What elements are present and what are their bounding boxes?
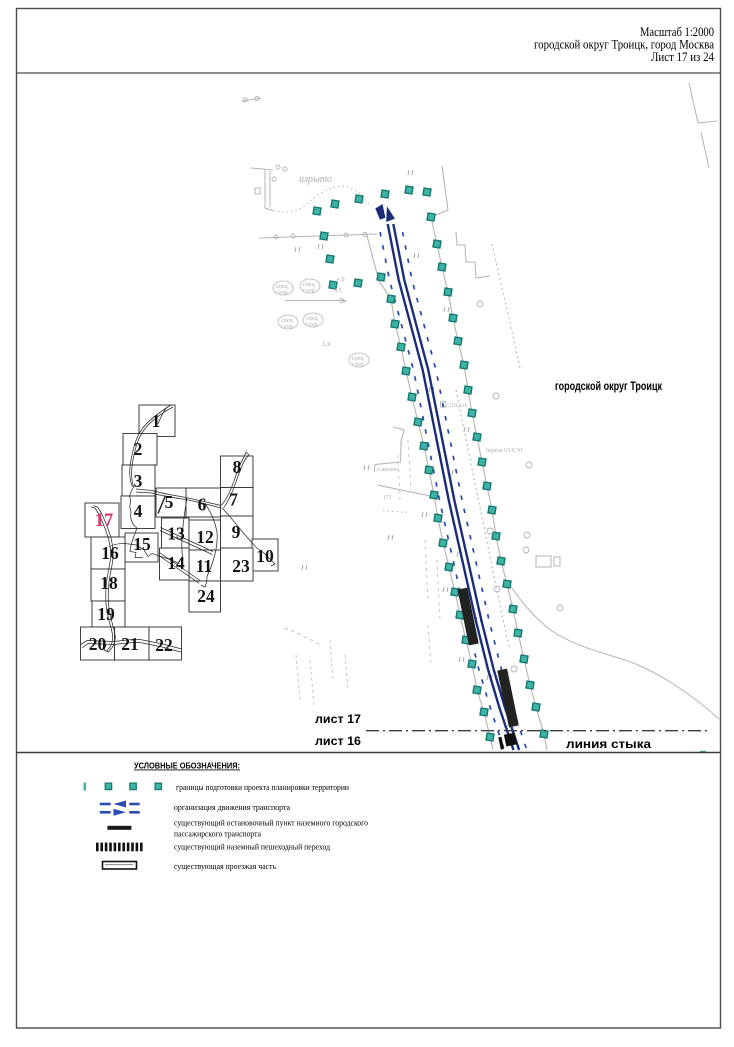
svg-text:6: 6: [198, 495, 207, 515]
svg-text:19: 19: [97, 604, 115, 624]
svg-text:я Б: я Б: [337, 277, 345, 283]
svg-text:12: 12: [196, 527, 214, 547]
svg-text:1,в: 1,в: [322, 340, 331, 348]
svg-text:пассажирского транспорта: пассажирского транспорта: [174, 830, 261, 839]
svg-text:лист 17: лист 17: [315, 714, 361, 726]
svg-text:границы подготовки проекта пла: границы подготовки проекта планировки те…: [176, 783, 350, 792]
svg-text:18: 18: [100, 573, 118, 593]
svg-text:лист 16: лист 16: [315, 736, 361, 748]
svg-text:7: 7: [229, 490, 238, 510]
svg-text:22: 22: [155, 635, 173, 655]
svg-text:17: 17: [95, 511, 114, 531]
svg-text:линия стыка: линия стыка: [566, 739, 652, 751]
svg-text:существующий наземный пешеходн: существующий наземный пешеходный переход: [174, 843, 330, 852]
svg-text:существующий остановочный пунк: существующий остановочный пункт наземног…: [174, 819, 368, 828]
svg-text:0,5: 0,5: [334, 288, 342, 294]
svg-text:организация движения транспорт: организация движения транспорта: [174, 803, 290, 812]
svg-text:(71: (71: [384, 494, 392, 501]
svg-text:11: 11: [196, 556, 213, 576]
svg-text:п.вяскоо: п.вяскоо: [377, 467, 398, 473]
svg-text:изрыто: изрыто: [299, 174, 332, 185]
svg-text:24: 24: [197, 586, 215, 606]
svg-text:21: 21: [121, 634, 139, 654]
svg-text:9: 9: [232, 522, 241, 542]
svg-text:23: 23: [232, 556, 250, 576]
svg-text:городской округ Троицк: городской округ Троицк: [555, 381, 662, 393]
svg-text:УСЛОВНЫЕ ОБОЗНАЧЕНИЯ:: УСЛОВНЫЕ ОБОЗНАЧЕНИЯ:: [134, 761, 240, 771]
svg-text:существующая проезжая часть: существующая проезжая часть: [174, 862, 276, 871]
svg-text:10: 10: [256, 546, 274, 566]
svg-text:Лист 17 из 24: Лист 17 из 24: [651, 49, 714, 64]
svg-text:14: 14: [167, 553, 185, 573]
svg-text:береза 03/0,30: береза 03/0,30: [486, 447, 522, 454]
svg-text:3: 3: [134, 471, 143, 491]
svg-text:20: 20: [89, 634, 107, 654]
svg-text:1: 1: [152, 411, 161, 431]
svg-text:15: 15: [133, 534, 151, 554]
svg-text:5: 5: [165, 492, 174, 512]
svg-text:210,216: 210,216: [448, 403, 468, 409]
svg-text:4: 4: [134, 501, 143, 521]
svg-text:16: 16: [101, 543, 119, 563]
svg-text:8: 8: [233, 457, 242, 477]
svg-text:13: 13: [167, 524, 185, 544]
svg-text:2: 2: [134, 439, 143, 459]
